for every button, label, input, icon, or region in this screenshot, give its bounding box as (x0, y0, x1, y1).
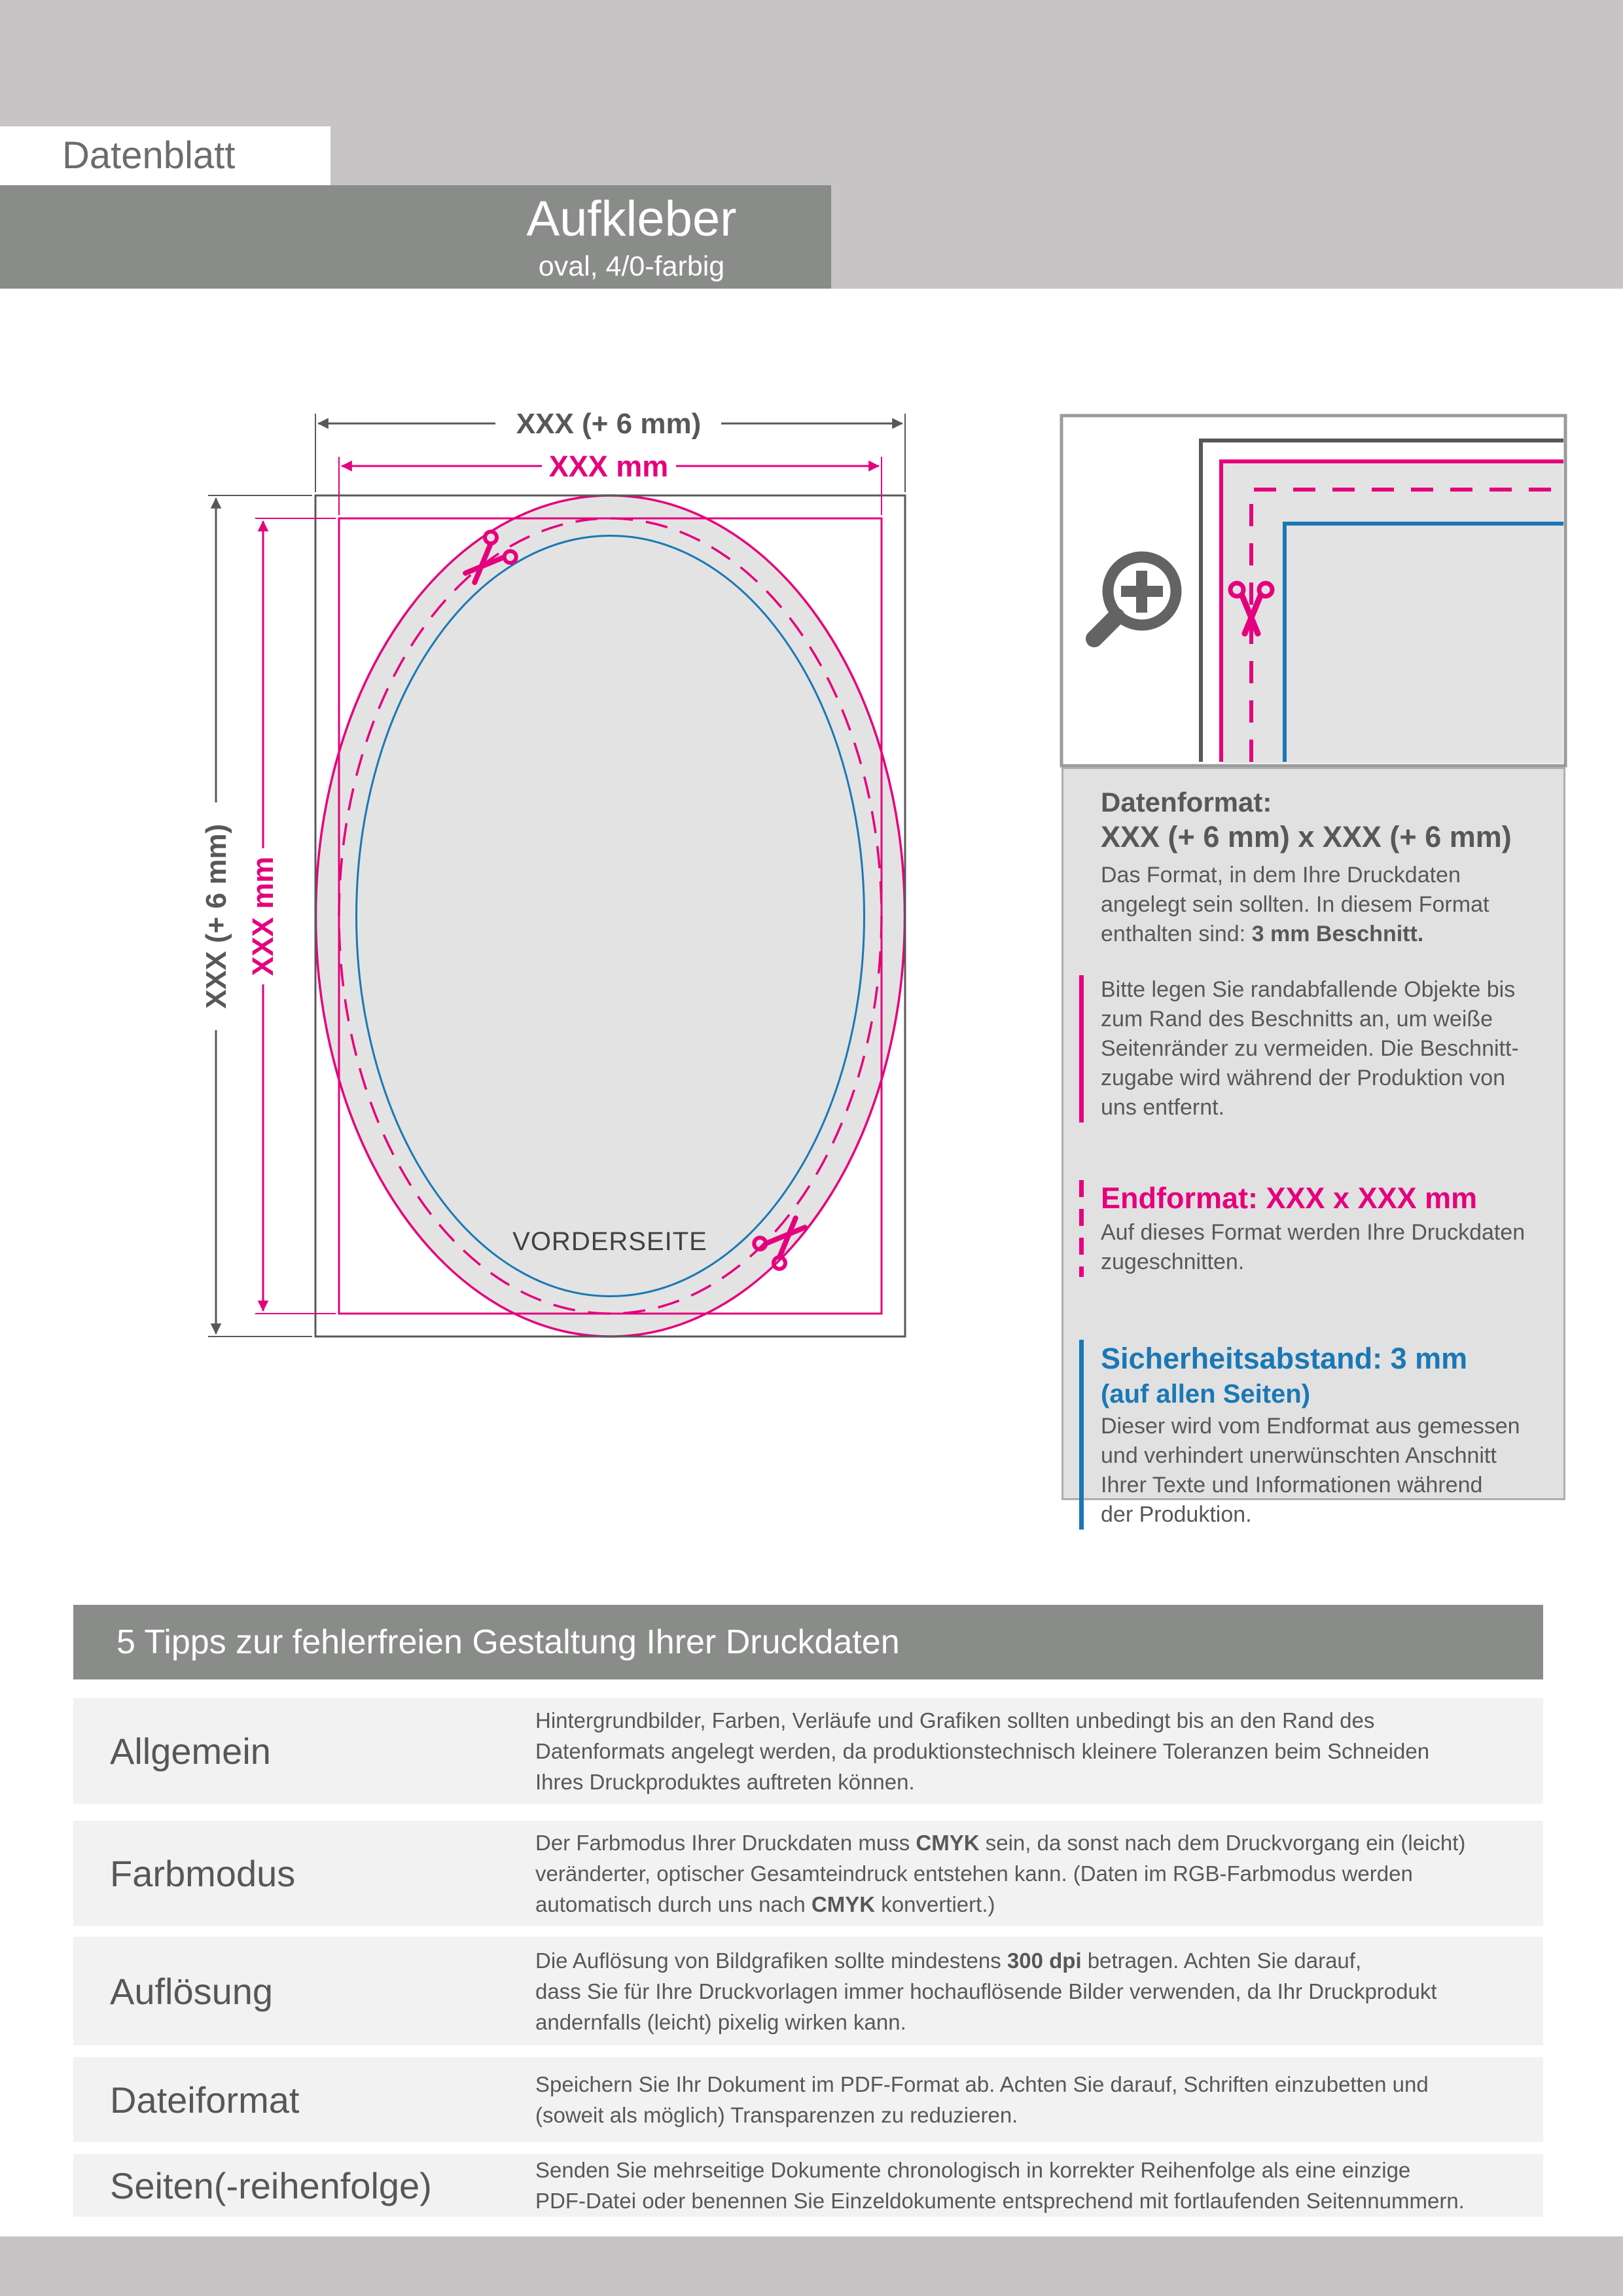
bleed-note-text: Bitte legen Sie randabfallende Objekte b… (1101, 975, 1519, 1122)
dim-height-inner-label: XXX mm (246, 857, 279, 977)
dashed-magenta-bar (1079, 1180, 1084, 1277)
datasheet-page: Aufkleber oval, 4/0-farbig Datenblatt (0, 0, 1623, 2296)
safety-margin-note: Sicherheitsabstand: 3 mm (auf allen Seit… (1079, 1340, 1544, 1530)
tips-banner: 5 Tipps zur fehlerfreien Gestaltung Ihre… (73, 1605, 1543, 1679)
dim-width-outer-label: XXX (+ 6 mm) (516, 408, 701, 440)
tip-text: Hintergrundbilder, Farben, Verläufe und … (535, 1705, 1429, 1797)
tip-text: Speichern Sie Ihr Dokument im PDF-Format… (535, 2069, 1429, 2130)
endformat-heading: Endformat: XXX x XXX mm (1101, 1180, 1525, 1217)
safety-subheading: (auf allen Seiten) (1101, 1378, 1520, 1410)
tip-title: Farbmodus (110, 1821, 295, 1926)
tip-title: Seiten(-reihenfolge) (110, 2154, 432, 2217)
tip-row-seitenreihenfolge: Seiten(-reihenfolge) Senden Sie mehrseit… (73, 2154, 1543, 2217)
product-banner-text: Aufkleber oval, 4/0-farbig (432, 185, 831, 289)
tips-banner-title: 5 Tipps zur fehlerfreien Gestaltung Ihre… (73, 1605, 1543, 1679)
endformat-note: Endformat: XXX x XXX mm Auf dieses Forma… (1079, 1180, 1544, 1277)
safety-heading: Sicherheitsabstand: 3 mm (1101, 1340, 1520, 1378)
tip-row-farbmodus: Farbmodus Der Farbmodus Ihrer Druckdaten… (73, 1821, 1543, 1926)
tip-text: Senden Sie mehrseitige Dokumente chronol… (535, 2155, 1465, 2216)
tip-row-allgemein: Allgemein Hintergrundbilder, Farben, Ver… (73, 1698, 1543, 1804)
blue-bar (1079, 1340, 1084, 1530)
product-title: Aufkleber (432, 189, 831, 249)
tip-text: Der Farbmodus Ihrer Druckdaten muss CMYK… (535, 1827, 1465, 1920)
bleed-note: Bitte legen Sie randabfallende Objekte b… (1079, 975, 1544, 1122)
tip-title: Dateiformat (110, 2057, 299, 2142)
sticker-outer-ellipse (316, 495, 905, 1336)
endformat-description: Auf dieses Format werden Ihre Druckdaten… (1101, 1218, 1525, 1277)
tip-text: Die Auflösung von Bildgrafiken sollte mi… (535, 1945, 1437, 2037)
tip-row-aufloesung: Auflösung Die Auflösung von Bildgrafiken… (73, 1937, 1543, 2045)
sheet-label: Datenblatt (0, 126, 330, 185)
tip-title: Allgemein (110, 1698, 271, 1804)
dim-height-outer-label: XXX (+ 6 mm) (200, 824, 232, 1009)
footer-gray-band (0, 2236, 1623, 2296)
dim-width-inner-label: XXX mm (549, 450, 669, 483)
format-info-panel: Datenformat: XXX (+ 6 mm) x XXX (+ 6 mm)… (1061, 767, 1565, 1500)
sticker-diagram: XXX (+ 6 mm) XXX mm XXX (+ 6 mm) XXX mm … (183, 393, 969, 1388)
tip-row-dateiformat: Dateiformat Speichern Sie Ihr Dokument i… (73, 2057, 1543, 2142)
sheet-label-box: Datenblatt (0, 126, 330, 185)
corner-detail-box (1059, 413, 1568, 768)
datenformat-heading: Datenformat: (1101, 786, 1544, 819)
datenformat-description: Das Format, in dem Ihre Druckdaten angel… (1101, 861, 1544, 949)
magenta-bar (1079, 975, 1084, 1122)
tip-title: Auflösung (110, 1937, 273, 2045)
product-subtitle: oval, 4/0-farbig (432, 249, 831, 283)
front-side-label: VORDERSEITE (512, 1227, 707, 1256)
product-banner: Aufkleber oval, 4/0-farbig (0, 185, 831, 289)
datenformat-value: XXX (+ 6 mm) x XXX (+ 6 mm) (1101, 819, 1544, 855)
safety-description: Dieser wird vom Endformat aus gemessen u… (1101, 1412, 1520, 1530)
